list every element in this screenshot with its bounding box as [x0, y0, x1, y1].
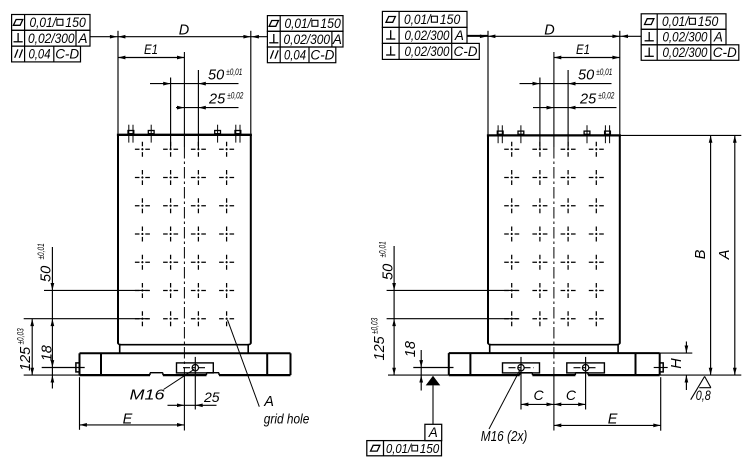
svg-text:150: 150: [320, 16, 341, 31]
svg-text:D: D: [179, 23, 189, 39]
svg-text:±0,02: ±0,02: [227, 91, 244, 102]
svg-text:150: 150: [65, 15, 86, 30]
svg-text:D: D: [544, 22, 554, 38]
svg-text:0,02/300: 0,02/300: [284, 32, 331, 47]
svg-text:25: 25: [579, 91, 597, 107]
svg-text:C: C: [566, 387, 577, 403]
svg-text:A: A: [454, 28, 464, 43]
svg-text:0,01/: 0,01/: [30, 15, 58, 30]
svg-text:125: 125: [372, 335, 388, 360]
svg-text:A: A: [263, 394, 274, 410]
svg-text:H: H: [669, 358, 685, 369]
svg-text:±0,03: ±0,03: [369, 317, 380, 334]
svg-text:A: A: [77, 31, 87, 46]
svg-text:A: A: [428, 425, 438, 440]
svg-text:0,04: 0,04: [29, 47, 51, 62]
svg-text:0,02/300: 0,02/300: [28, 31, 75, 46]
svg-text:25: 25: [208, 91, 226, 107]
svg-text:0,01/: 0,01/: [386, 441, 412, 456]
svg-text:50: 50: [208, 68, 224, 84]
svg-text:C: C: [534, 387, 545, 403]
svg-text:50: 50: [39, 266, 55, 282]
svg-text:±0,01: ±0,01: [226, 67, 242, 78]
svg-text:0,01/: 0,01/: [662, 14, 690, 29]
svg-text:50: 50: [380, 264, 396, 280]
svg-text:B: B: [693, 249, 709, 259]
svg-text:E1: E1: [576, 41, 590, 57]
svg-text:A: A: [717, 250, 733, 261]
svg-text:0,8: 0,8: [696, 388, 711, 403]
svg-text:C-D: C-D: [55, 47, 79, 62]
svg-text:M16 (2x): M16 (2x): [481, 429, 528, 445]
svg-text:A: A: [332, 32, 342, 47]
svg-text:C-D: C-D: [454, 44, 478, 59]
svg-text:50: 50: [578, 68, 594, 84]
svg-text:0,01/: 0,01/: [404, 12, 432, 27]
svg-text:C-D: C-D: [310, 48, 334, 63]
svg-text:C-D: C-D: [713, 45, 737, 60]
svg-text:125: 125: [18, 346, 34, 371]
svg-text:18: 18: [40, 345, 56, 361]
svg-text:0,02/300: 0,02/300: [405, 44, 450, 59]
svg-text:grid hole: grid hole: [264, 412, 310, 427]
svg-text:E: E: [608, 411, 618, 427]
svg-text:0,02/300: 0,02/300: [663, 45, 708, 60]
svg-text:18: 18: [403, 341, 419, 357]
svg-text:±0,01: ±0,01: [378, 241, 389, 257]
svg-text:E: E: [123, 411, 133, 427]
svg-text:150: 150: [420, 441, 440, 456]
svg-text:0,01/: 0,01/: [285, 16, 313, 31]
svg-text:0,02/300: 0,02/300: [663, 30, 708, 45]
svg-text:25: 25: [203, 389, 220, 405]
svg-text:E1: E1: [144, 41, 158, 57]
svg-text:150: 150: [440, 12, 461, 27]
svg-text:M16: M16: [130, 387, 166, 403]
svg-text:±0,02: ±0,02: [598, 91, 615, 102]
svg-text:A: A: [713, 30, 723, 45]
svg-text:±0,03: ±0,03: [15, 328, 26, 345]
svg-text:±0,01: ±0,01: [596, 67, 612, 78]
svg-text:±0,01: ±0,01: [36, 243, 47, 259]
svg-text:150: 150: [698, 14, 719, 29]
svg-text:0,04: 0,04: [284, 48, 306, 63]
svg-text:0,02/300: 0,02/300: [405, 28, 450, 43]
